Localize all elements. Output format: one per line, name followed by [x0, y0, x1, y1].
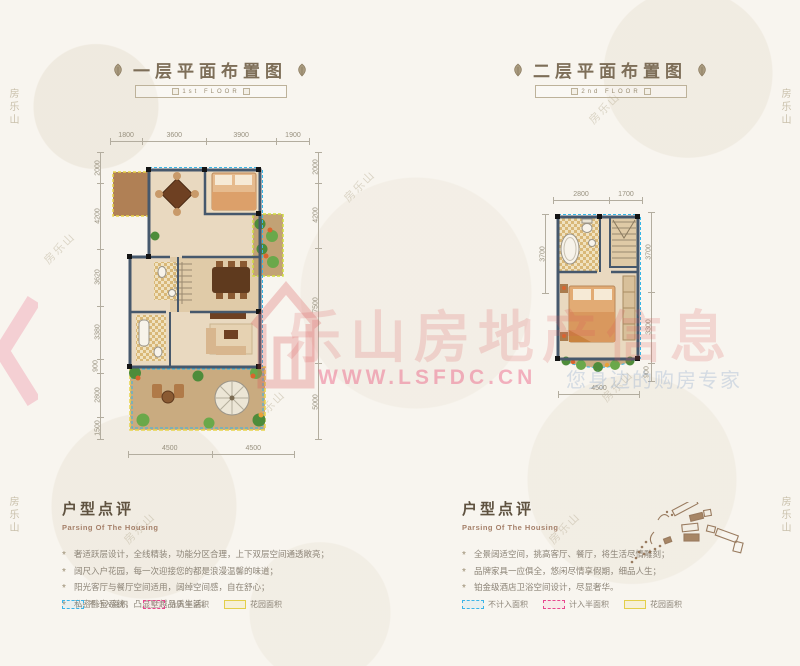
watermark-brand-text: 乐山房地产信息	[286, 293, 734, 374]
edge-watermark: 房乐山	[777, 88, 792, 127]
watermark-tagline: 您身边的购房专家	[566, 364, 742, 393]
bathtub	[139, 320, 149, 346]
parasol	[215, 381, 249, 415]
edge-watermark: 房乐山	[5, 88, 20, 127]
dim-label: 3900	[233, 132, 249, 139]
watermark-chevron	[0, 296, 38, 406]
floor1-banner: 1st FLOOR	[135, 85, 287, 98]
floor2-dim-top: 2800 1700	[553, 193, 643, 205]
review-bullet: 阳光客厅与餐厅空间适用，阔绰空间感，自在舒心；	[62, 579, 412, 596]
dim-label: 1800	[118, 132, 134, 139]
legend-item: 计入半面积	[543, 599, 609, 610]
dim-label: 1700	[618, 191, 634, 198]
review-heading: 户型点评	[62, 498, 412, 519]
legend-item: 花园面积	[224, 599, 282, 610]
floor2-banner-label: 2nd FLOOR	[581, 89, 640, 95]
legend-label: 不计入面积	[488, 599, 528, 610]
bed-lower	[172, 318, 208, 360]
legend-label: 不计入面积	[88, 599, 128, 610]
dim-label: 3600	[166, 132, 182, 139]
floor1-title-row: 一层平面布置图	[110, 57, 310, 82]
floor2-banner: 2nd FLOOR	[535, 85, 687, 98]
toilet	[154, 347, 162, 357]
diagonal-watermark: 房乐山	[40, 229, 79, 268]
legend-label: 花园面积	[250, 599, 282, 610]
floor1-title: 一层平面布置图	[133, 57, 287, 82]
review-bullet: 阔尺入户花园，每一次迎接您的都是浪漫温馨的味道；	[62, 563, 412, 580]
dim-label: 3700	[645, 244, 652, 260]
dim-label: 1500	[94, 421, 101, 437]
review-section-left: 户型点评 Parsing Of The Housing 奢适跃层设计，全线精装，…	[62, 498, 412, 612]
leaf-ornament-icon	[112, 63, 124, 77]
leaf-ornament-icon	[296, 63, 308, 77]
legend-item: 不计入面积	[462, 599, 528, 610]
floor1-dim-left: 2000 4200 3620 3380 900 2800 1500	[94, 152, 106, 440]
legend-swatch-garden-area	[624, 600, 646, 609]
bathtub	[561, 234, 579, 264]
dim-label: 4200	[94, 208, 101, 224]
legend-item: 花园面积	[624, 599, 682, 610]
dim-label: 2800	[573, 191, 589, 198]
dim-label: 4500	[245, 445, 261, 452]
dim-label: 5000	[312, 394, 319, 410]
entry-garden	[113, 172, 149, 216]
legend-right: 不计入面积 计入半面积 花园面积	[462, 599, 691, 610]
floor2-title: 二层平面布置图	[533, 57, 687, 82]
review-bullet: 奢适跃层设计，全线精装，功能分区合理，上下双层空间通透敞亮；	[62, 546, 412, 563]
site-map-dots	[631, 511, 674, 564]
dining-set	[212, 261, 250, 299]
watermark-url-text: WWW.LSFDC.CN	[318, 366, 536, 390]
floor1-dim-top: 1800 3600 3900 1900	[110, 134, 310, 146]
floor1-dim-bottom: 4500 4500	[128, 447, 295, 459]
leaf-ornament-icon	[696, 63, 708, 77]
legend-swatch-excluded-area	[62, 600, 84, 609]
dim-label: 900	[92, 360, 99, 372]
review-bullet: 铂金级酒店卫浴空间设计，尽显奢华。	[462, 579, 800, 596]
floor1-banner-label: 1st FLOOR	[182, 89, 239, 95]
dim-label: 3380	[94, 324, 101, 340]
bed-upper	[212, 173, 256, 210]
legend-label: 花园面积	[650, 599, 682, 610]
edge-watermark: 房乐山	[5, 496, 20, 535]
legend-item: 不计入面积	[62, 599, 128, 610]
floor2-title-row: 二层平面布置图	[510, 57, 710, 82]
site-map	[612, 502, 752, 567]
diagonal-watermark: 房乐山	[340, 167, 379, 206]
review-subheading: Parsing Of The Housing	[62, 523, 412, 532]
leaf-ornament-icon	[512, 63, 524, 77]
legend-swatch-garden-area	[224, 600, 246, 609]
legend-swatch-excluded-area	[462, 600, 484, 609]
legend-item: 计入半面积	[143, 599, 209, 610]
plant	[151, 232, 160, 241]
dim-label: 3700	[539, 246, 546, 262]
dim-label: 2800	[94, 387, 101, 403]
toilet	[582, 219, 592, 233]
dim-label: 4200	[312, 207, 319, 223]
legend-swatch-half-area	[543, 600, 565, 609]
legend-label: 计入半面积	[569, 599, 609, 610]
dim-label: 4500	[162, 445, 178, 452]
legend-swatch-half-area	[143, 600, 165, 609]
dim-label: 2000	[312, 160, 319, 176]
toilet	[158, 267, 166, 278]
floor2-dim-left: 3700	[539, 214, 551, 294]
dim-label: 3620	[94, 270, 101, 286]
dim-label: 2000	[94, 160, 101, 176]
dim-label: 1900	[285, 132, 301, 139]
legend-label: 计入半面积	[169, 599, 209, 610]
sink	[589, 240, 596, 247]
sink	[169, 290, 176, 297]
legend-left: 不计入面积 计入半面积 花园面积	[62, 599, 291, 610]
